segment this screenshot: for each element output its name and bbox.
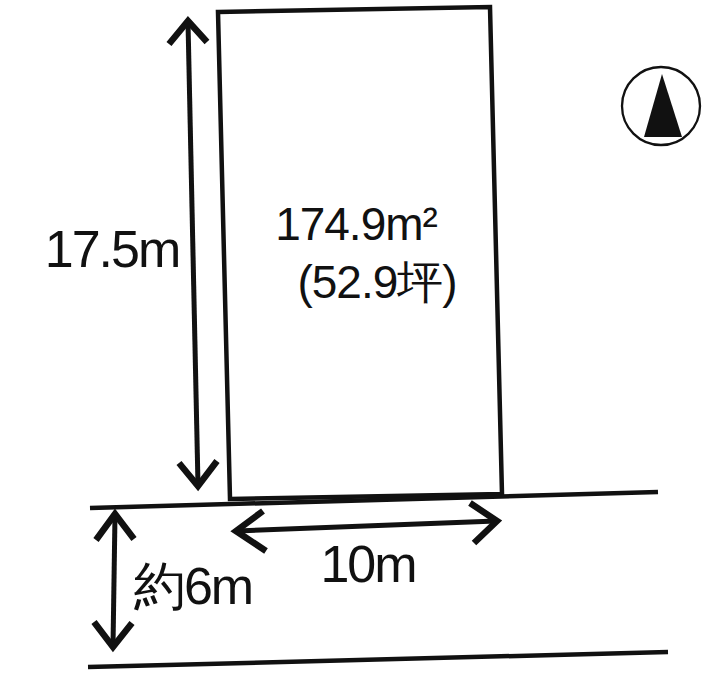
road-width-arrow-stem xyxy=(113,515,115,646)
frontage-dimension-label: 10m xyxy=(320,538,415,590)
plot-area-sqm-label: 174.9m² xyxy=(275,201,437,247)
plot-outline xyxy=(218,7,502,499)
road-width-dimension-arrow xyxy=(94,514,134,647)
north-arrow-icon xyxy=(622,67,700,145)
land-plot-diagram: 17.5m 174.9m² (52.9坪) 10m 約6m xyxy=(0,0,710,675)
depth-dimension-label: 17.5m xyxy=(45,223,180,275)
frontage-arrow-stem xyxy=(237,521,496,531)
plot-area-tsubo-label: (52.9坪) xyxy=(297,259,456,305)
depth-arrow-stem xyxy=(188,22,198,485)
road-width-dimension-label: 約6m xyxy=(134,560,252,612)
road-edge-far-line xyxy=(88,652,668,667)
